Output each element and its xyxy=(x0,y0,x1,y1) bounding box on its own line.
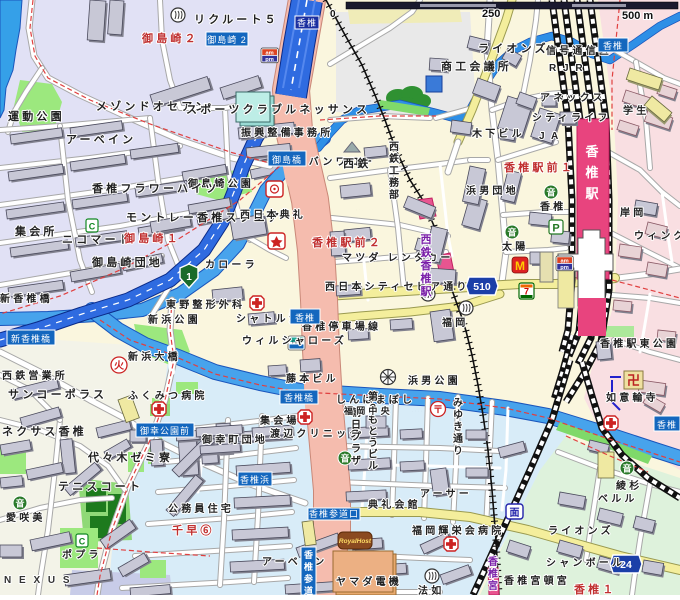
svg-text:渡辺クリニック: 渡辺クリニック xyxy=(270,427,362,440)
svg-text:木下ビル: 木下ビル xyxy=(471,127,525,140)
svg-text:C: C xyxy=(89,222,96,232)
svg-text:西日本典礼: 西日本典礼 xyxy=(240,208,306,221)
svg-text:香椎: 香椎 xyxy=(295,312,315,323)
svg-text:みゆき通り: みゆき通り xyxy=(453,397,463,457)
svg-text:テニスコート: テニスコート xyxy=(58,480,143,493)
svg-text:集会所: 集会所 xyxy=(14,224,58,238)
svg-text:御島崎１: 御島崎１ xyxy=(123,231,181,245)
svg-text:7: 7 xyxy=(524,287,529,297)
svg-text:510: 510 xyxy=(473,281,491,293)
svg-text:香椎宮頓宮: 香椎宮頓宮 xyxy=(504,574,570,587)
svg-text:火: 火 xyxy=(114,360,125,372)
svg-text:ウィルシャローズ: ウィルシャローズ xyxy=(242,334,347,347)
svg-text:カローラ: カローラ xyxy=(205,259,258,271)
svg-text:〒: 〒 xyxy=(433,404,443,416)
svg-text:御島橋: 御島橋 xyxy=(272,154,302,165)
svg-text:福岡: 福岡 xyxy=(441,316,468,329)
svg-text:第２もとうビル: 第２もとうビル xyxy=(368,390,378,472)
svg-text:アネックス: アネックス xyxy=(540,92,606,104)
svg-text:公務員住宅: 公務員住宅 xyxy=(168,502,234,515)
svg-text:新香椎橋: 新香椎橋 xyxy=(0,292,53,305)
svg-text:ライオンズ: ライオンズ xyxy=(548,524,614,537)
svg-text:香椎: 香椎 xyxy=(540,200,566,213)
svg-text:香椎橋: 香椎橋 xyxy=(284,392,314,403)
svg-text:サンコーポラス: サンコーポラス xyxy=(8,387,107,401)
svg-text:ニコマート: ニコマート xyxy=(62,233,133,246)
svg-text:香椎駅前２: 香椎駅前２ xyxy=(311,235,383,249)
svg-text:香椎: 香椎 xyxy=(657,419,677,430)
svg-text:音: 音 xyxy=(507,227,516,238)
svg-text:西日本シティセビア通り: 西日本シティセビア通り xyxy=(325,280,470,293)
svg-text:500 m: 500 m xyxy=(622,10,653,22)
svg-text:商工会議所: 商工会議所 xyxy=(441,59,512,73)
svg-text:新香椎橋: 新香椎橋 xyxy=(11,333,51,344)
svg-text:N E X U S: N E X U S xyxy=(4,575,72,586)
svg-text:香椎駅: 香椎駅 xyxy=(584,144,599,201)
svg-text:ポプラ: ポプラ xyxy=(62,548,102,561)
svg-text:P: P xyxy=(552,223,559,235)
svg-text:シャンボール: シャンボール xyxy=(546,556,625,569)
svg-text:音: 音 xyxy=(622,463,631,474)
svg-text:香椎フラワーハイツ: 香椎フラワーハイツ xyxy=(91,181,219,195)
svg-text:アーベイン: アーベイン xyxy=(262,556,327,568)
svg-text:西鉄: 西鉄 xyxy=(343,156,371,170)
svg-text:新浜公園: 新浜公園 xyxy=(148,313,201,326)
svg-text:香椎１: 香椎１ xyxy=(573,582,617,595)
svg-text:0: 0 xyxy=(330,9,336,20)
svg-text:東野整形外科: 東野整形外科 xyxy=(166,298,245,311)
svg-text:香椎: 香椎 xyxy=(603,40,623,51)
svg-text:藤本ビル: 藤本ビル xyxy=(286,372,339,385)
svg-text:音: 音 xyxy=(546,187,555,198)
svg-text:如意輪寺: 如意輪寺 xyxy=(606,391,659,404)
svg-text:千早⑥: 千早⑥ xyxy=(172,523,215,537)
svg-text:岸岡: 岸岡 xyxy=(620,206,646,219)
svg-text:御幸公園前: 御幸公園前 xyxy=(140,425,190,436)
svg-text:ベルル: ベルル xyxy=(598,493,638,505)
svg-text:太陽: 太陽 xyxy=(501,240,528,253)
svg-text:R J R: R J R xyxy=(549,63,585,74)
svg-text:卍: 卍 xyxy=(627,373,640,388)
svg-text:御幸町団地: 御幸町団地 xyxy=(201,433,268,446)
svg-text:RoyalHost: RoyalHost xyxy=(339,538,372,545)
svg-text:シティライフ: シティライフ xyxy=(532,112,611,124)
svg-text:福岡中央: 福岡中央 xyxy=(343,405,393,416)
svg-text:香椎駅前１: 香椎駅前１ xyxy=(503,160,575,174)
svg-text:香椎宮: 香椎宮 xyxy=(487,555,498,592)
svg-text:運動公園: 運動公園 xyxy=(8,109,65,123)
svg-text:1: 1 xyxy=(186,272,192,283)
svg-text:マツダ レンタカー: マツダ レンタカー xyxy=(342,251,454,264)
svg-text:西鉄香椎駅: 西鉄香椎駅 xyxy=(420,233,433,298)
svg-text:振興整備事務所: 振興整備事務所 xyxy=(241,126,333,139)
svg-text:新浜大橋: 新浜大橋 xyxy=(128,350,181,363)
svg-text:福岡輝栄会病院: 福岡輝栄会病院 xyxy=(411,524,504,537)
svg-text:香椎駅東公園: 香椎駅東公園 xyxy=(600,337,679,350)
svg-text:ふくみつ病院: ふくみつ病院 xyxy=(128,389,208,402)
svg-text:スポーツクラブルネッサンス: スポーツクラブルネッサンス xyxy=(186,102,370,116)
svg-text:ウィング: ウィング xyxy=(634,229,680,242)
svg-text:西鉄営業所: 西鉄営業所 xyxy=(2,369,68,382)
svg-text:面: 面 xyxy=(510,507,520,519)
svg-text:M: M xyxy=(515,259,525,273)
svg-text:am: am xyxy=(560,259,568,265)
svg-text:代々木ゼミ寮: 代々木ゼミ寮 xyxy=(87,450,173,464)
svg-text:集会場: 集会場 xyxy=(259,414,300,427)
svg-text:アーサー: アーサー xyxy=(420,488,472,500)
svg-text:香椎参道口: 香椎参道口 xyxy=(309,508,359,519)
svg-text:ヤマダ電機: ヤマダ電機 xyxy=(336,575,402,588)
svg-text:pm: pm xyxy=(560,265,569,271)
svg-text:アーベイン: アーベイン xyxy=(66,133,136,146)
svg-text:浜男団地: 浜男団地 xyxy=(466,184,519,197)
svg-text:香椎浜: 香椎浜 xyxy=(240,474,270,485)
svg-text:学生: 学生 xyxy=(623,104,649,117)
svg-text:香椎: 香椎 xyxy=(297,17,317,28)
svg-text:愛咲美: 愛咲美 xyxy=(6,511,46,524)
svg-text:御島崎２: 御島崎２ xyxy=(141,31,199,45)
svg-text:綾杉: 綾杉 xyxy=(616,479,642,492)
svg-text:am: am xyxy=(265,51,273,57)
svg-text:250: 250 xyxy=(482,8,500,20)
svg-text:リクルート５: リクルート５ xyxy=(194,13,279,26)
svg-text:御島崎団地: 御島崎団地 xyxy=(91,255,163,269)
svg-text:御島崎 2: 御島崎 2 xyxy=(207,34,247,45)
svg-text:浜男公園: 浜男公園 xyxy=(408,374,461,387)
svg-text:音: 音 xyxy=(340,453,349,464)
svg-text:ライオンズ: ライオンズ xyxy=(478,41,549,55)
svg-text:ネクサス香椎: ネクサス香椎 xyxy=(2,424,87,438)
svg-text:J A: J A xyxy=(539,131,560,142)
svg-text:西鉄工務部: 西鉄工務部 xyxy=(389,141,400,201)
svg-text:pm: pm xyxy=(265,57,274,63)
svg-text:C: C xyxy=(79,537,86,547)
svg-text:音: 音 xyxy=(15,498,24,509)
svg-text:典礼会館: 典礼会館 xyxy=(368,498,421,511)
svg-text:法如: 法如 xyxy=(418,584,444,595)
